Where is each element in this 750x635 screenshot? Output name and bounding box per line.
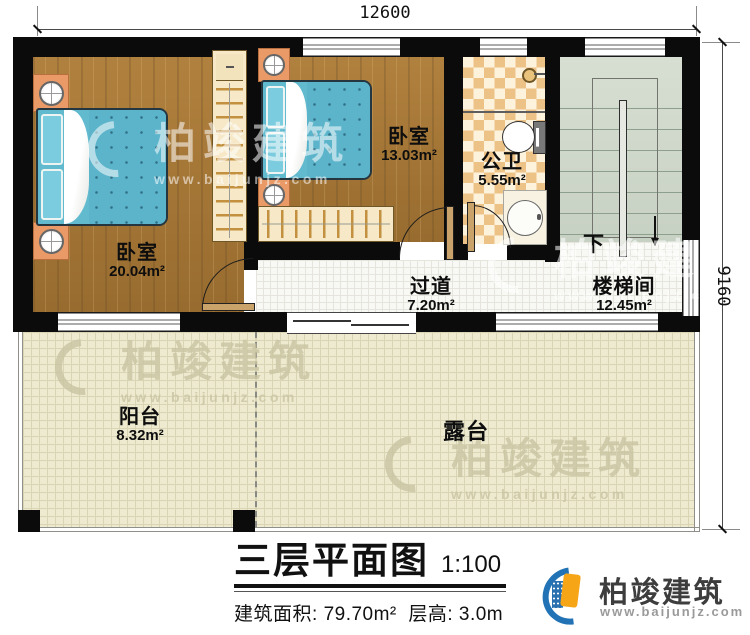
- sink-faucet: [537, 214, 541, 220]
- pillows: [266, 86, 285, 174]
- blanket-fold: [64, 110, 89, 224]
- door-leaf-bathroom: [467, 202, 475, 252]
- room-label-corridor: 过道 7.20m²: [371, 276, 491, 315]
- lamp-icon: [263, 184, 285, 206]
- pillow: [41, 114, 63, 165]
- nightstand: [258, 48, 290, 82]
- floor-height-label: 层高:: [397, 604, 459, 625]
- lamp-icon: [263, 54, 285, 76]
- room-label-balcony: 阳台 8.32m²: [80, 406, 200, 445]
- window-bedroom1-balcony: [58, 312, 180, 332]
- floor-height-value: 3.0m: [459, 604, 503, 625]
- room-area: 7.20m²: [371, 298, 491, 315]
- stair-center-rail: [619, 100, 627, 257]
- plan-title: 三层平面图: [234, 542, 429, 581]
- nightstand: [33, 74, 69, 112]
- shower-head-icon: [522, 68, 537, 83]
- balcony-terrace-divider: [255, 332, 257, 527]
- lamp-icon: [39, 229, 64, 254]
- pillow: [266, 132, 285, 174]
- balcony-rail-left-inner: [22, 332, 23, 532]
- room-name: 卧室: [77, 242, 197, 264]
- wardrobe-hangers: [262, 210, 390, 238]
- room-name: 露台: [406, 420, 526, 445]
- window-top-bedroom2: [303, 37, 400, 57]
- blanket-fold: [286, 82, 307, 178]
- lamp-icon: [39, 81, 64, 106]
- corner-post-left: [18, 510, 40, 532]
- pillows: [41, 114, 63, 220]
- room-name: 公卫: [442, 151, 562, 173]
- area-value: 79.70m²: [324, 604, 397, 625]
- dim-line-top: [37, 29, 697, 30]
- brand-website: www.baijunjz.com: [600, 604, 744, 619]
- title-block: 三层平面图 1:100 建筑面积: 79.70m² 层高: 3.0m: [234, 542, 506, 626]
- room-area: 8.32m²: [80, 428, 200, 445]
- plan-scale: 1:100: [441, 551, 501, 581]
- door-leaf-bedroom1: [202, 303, 255, 311]
- stair-arrow-line: [654, 216, 656, 238]
- wall-bed2-bottom: [244, 242, 400, 260]
- title-underline-thick: [234, 584, 506, 588]
- room-area: 12.45m²: [564, 298, 684, 315]
- window-right-stairwell: [682, 240, 700, 316]
- bed-bedroom1: [36, 108, 168, 226]
- terrace-rail-right-inner: [694, 332, 695, 532]
- toilet-bowl-icon: [502, 121, 535, 153]
- area-label: 建筑面积:: [234, 604, 324, 625]
- room-name: 楼梯间: [564, 276, 684, 298]
- sliding-door-leaf-right: [351, 324, 409, 326]
- room-label-terrace: 露台: [406, 420, 526, 445]
- wall-bath-door-stub: [452, 244, 468, 260]
- patio-rail-bottom-inner: [18, 527, 700, 528]
- door-leaf-bedroom2: [446, 206, 454, 260]
- wall-left: [13, 37, 33, 332]
- room-name: 卧室: [349, 126, 469, 148]
- balcony-rail-left-outer: [18, 332, 19, 532]
- stair-down-label: 下: [583, 228, 604, 258]
- shower-stem: [534, 73, 545, 75]
- pillow: [266, 86, 285, 128]
- room-area: 5.55m²: [442, 173, 562, 190]
- nightstand: [33, 222, 69, 260]
- wall-bath-stair: [545, 37, 560, 262]
- room-area: 20.04m²: [77, 264, 197, 281]
- room-label-bathroom: 公卫 5.55m²: [442, 151, 562, 190]
- wardrobe-hangers: [216, 83, 243, 238]
- terrace-rail-right-outer: [699, 332, 700, 532]
- shower-partition: [463, 111, 545, 113]
- title-underline-thin: [234, 591, 506, 593]
- sliding-door-balcony: [287, 312, 416, 334]
- dim-width-label: 12600: [330, 3, 440, 23]
- stair-arrow-down-icon: [651, 238, 659, 246]
- sliding-door-leaf-left: [293, 320, 351, 322]
- room-name: 阳台: [80, 406, 200, 428]
- window-top-stairwell: [585, 37, 665, 57]
- wardrobe-bedroom1: [212, 50, 247, 242]
- room-label-stairwell: 楼梯间 12.45m²: [564, 276, 684, 315]
- floor-plan-canvas: 下 柏竣建筑 www.baijunjz.com 柏竣建筑 www.baijunj…: [0, 0, 750, 635]
- corner-post-mid: [233, 510, 255, 532]
- pillow: [41, 169, 63, 220]
- wardrobe-bedroom2: [258, 206, 394, 242]
- duvet: [89, 110, 166, 224]
- room-label-bedroom1: 卧室 20.04m²: [77, 242, 197, 281]
- patio-rail-bottom-outer: [18, 531, 700, 532]
- dim-height-label: 9160: [713, 251, 733, 321]
- window-top-bathroom: [480, 37, 527, 57]
- wardrobe-drawer: [216, 54, 243, 81]
- room-name: 过道: [371, 276, 491, 298]
- plan-info: 建筑面积: 79.70m² 层高: 3.0m: [234, 599, 506, 626]
